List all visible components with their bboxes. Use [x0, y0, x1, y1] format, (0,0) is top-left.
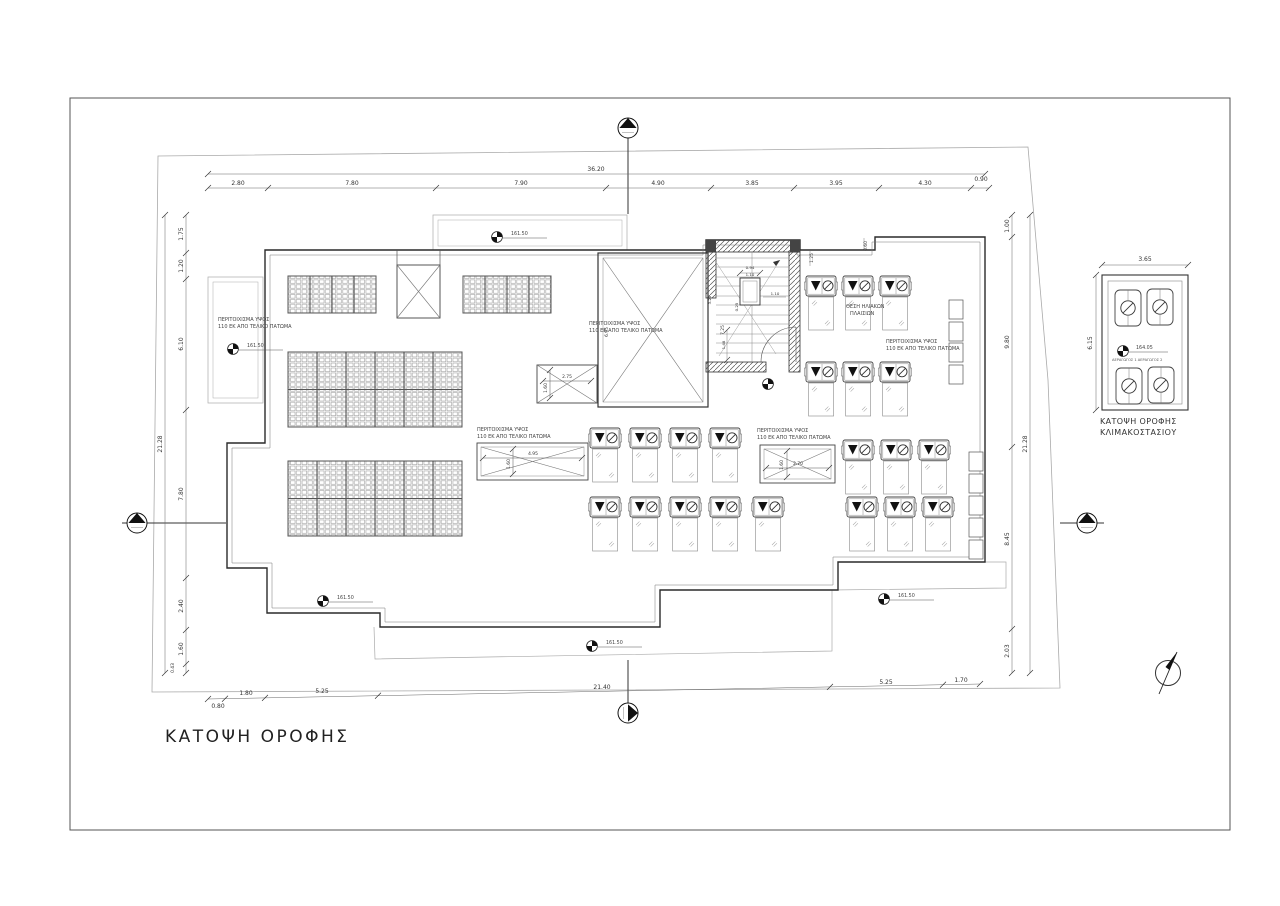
- hvac-unit: [883, 497, 916, 551]
- top-terrace-inner: [438, 220, 622, 246]
- vent-label: ΑΕΡΑΓΩΓΟΣ 1 ΑΕΡΑΓΩΓΟΣ 2: [1112, 358, 1162, 362]
- hvac-unit: [804, 276, 837, 330]
- dim: 5.25: [879, 679, 893, 686]
- bottom-terrace-line: [374, 590, 832, 659]
- hvac-unit: [878, 276, 911, 330]
- solar-panels-label: ΠΛΑΙΣΙΩΝ: [850, 311, 875, 317]
- dim: 3.85: [745, 180, 759, 187]
- dim: 6.15: [1087, 336, 1094, 350]
- hvac-unit: [921, 497, 954, 551]
- level-marker-icon: [763, 379, 774, 390]
- small-cross-box: [397, 265, 440, 318]
- hvac-unit: [588, 497, 621, 551]
- parapet-label: 110 ΕΚ ΑΠΟ ΤΕΛΙΚΟ ΠΑΤΩΜΑ: [218, 324, 292, 330]
- dim: 1.60: [543, 383, 549, 393]
- section-markers: [122, 118, 1104, 723]
- parapet-label: ΠΕΡΙΤΟΙΧΙΣΜΑ ΥΨΟΣ: [757, 428, 808, 434]
- hvac-unit: [668, 497, 701, 551]
- dim: 3.95: [829, 180, 843, 187]
- panel-array-lower: [288, 461, 462, 536]
- hvac-unit: [708, 497, 741, 551]
- level-value: 161.50: [247, 343, 264, 349]
- dimensions-top: 36.20 2.80 7.80 7.90 4.90 3.85 3.95 4.30…: [205, 166, 992, 191]
- dim: 3.65: [1138, 256, 1152, 263]
- parapet-label: 110 ΕΚ ΑΠΟ ΤΕΛΙΚΟ ΠΑΤΩΜΑ: [589, 328, 663, 334]
- dim: 1.80: [239, 690, 253, 697]
- roof-vent-unit: [1147, 289, 1173, 325]
- left-terrace: [208, 277, 263, 403]
- dim: 7.80: [178, 487, 185, 501]
- dim: 0.60: [863, 241, 869, 251]
- level-marker-icon: [1118, 346, 1129, 357]
- dim: 1.70: [954, 677, 968, 684]
- hvac-unit: [708, 428, 741, 482]
- section-marker-right: [1077, 513, 1097, 533]
- hvac-unit: [845, 497, 878, 551]
- hvac-unit: [804, 362, 837, 416]
- dim: 4.90: [651, 180, 665, 187]
- drawing-sheet: 161.50 161.50 161.50 161.50 161.50 36.20…: [0, 0, 1280, 906]
- solar-panel-arrays: [288, 276, 551, 536]
- panel-array-middle: [288, 352, 462, 427]
- roof-vent-unit: [1148, 367, 1174, 403]
- dim: 2.75: [562, 374, 572, 380]
- dim: 7.80: [345, 180, 359, 187]
- hvac-unit: [588, 428, 621, 482]
- dim: 0.90: [974, 176, 988, 183]
- dim: 1.75: [178, 227, 185, 241]
- dim: 1.48: [721, 340, 726, 349]
- dim: 21.40: [593, 684, 610, 691]
- section-marker-left: [127, 513, 147, 533]
- dim: 2.70: [793, 461, 803, 467]
- roof-plan-drawing: 161.50 161.50 161.50 161.50 161.50 36.20…: [0, 0, 1280, 906]
- dim: 1.25: [809, 253, 815, 263]
- dim: 1.10: [746, 272, 755, 277]
- detail-caption: ΚΛΙΜΑΚΟΣΤΑΣΙΟΥ: [1100, 428, 1177, 437]
- section-marker-top: [618, 118, 638, 138]
- hvac-unit: [879, 440, 912, 494]
- hvac-unit: [878, 362, 911, 416]
- parapet-label: ΠΕΡΙΤΟΙΧΙΣΜΑ ΥΨΟΣ: [589, 321, 640, 327]
- dimensions-bottom: 0.80 1.80 5.25 21.40 5.25 1.70: [205, 677, 983, 710]
- dim: 1.00: [1004, 219, 1011, 233]
- left-terrace-inner: [213, 282, 258, 398]
- level-marker-icon: [228, 344, 239, 355]
- parapet-label: 110 ΕΚ ΑΠΟ ΤΕΛΙΚΟ ΠΑΤΩΜΑ: [477, 434, 551, 440]
- dim-left-total: 21.28: [157, 435, 164, 452]
- dim: 8.45: [1004, 532, 1011, 546]
- wall-corner: [790, 240, 800, 252]
- drawing-title: ΚΑΤΟΨΗ ΟΡΟΦΗΣ: [165, 727, 350, 747]
- level-value: 161.50: [606, 640, 623, 646]
- dim: 2.40: [178, 599, 185, 613]
- panel-array-top-right: [463, 276, 551, 313]
- dim: 7.90: [514, 180, 528, 187]
- hvac-unit: [628, 497, 661, 551]
- level-value: 161.50: [898, 593, 915, 599]
- hvac-unit: [751, 497, 784, 551]
- wall-corner: [706, 240, 716, 252]
- panel-array-top-left: [288, 276, 376, 313]
- detail-caption: ΚΑΤΟΨΗ ΟΡΟΦΗΣ: [1100, 417, 1177, 426]
- dim: 2.03: [1004, 644, 1011, 658]
- parapet-label: ΠΕΡΙΤΟΙΧΙΣΜΑ ΥΨΟΣ: [477, 427, 528, 433]
- hvac-unit: [917, 440, 950, 494]
- dim: 1.60: [178, 642, 185, 656]
- dim: 3.25: [707, 295, 712, 304]
- stair-arrow: [773, 260, 780, 266]
- dim: 1.20: [178, 259, 185, 273]
- parapet-label: 110 ΕΚ ΑΠΟ ΤΕΛΙΚΟ ΠΑΤΩΜΑ: [886, 346, 960, 352]
- dim-top-total: 36.20: [587, 166, 604, 173]
- level-marker-icon: [879, 594, 890, 605]
- level-marker-icon: [492, 232, 503, 243]
- dim: 0.25: [734, 302, 739, 311]
- hvac-units: [588, 276, 954, 551]
- dim: 7.25: [720, 325, 726, 335]
- north-arrow-icon: [1156, 652, 1181, 694]
- dim: 0.80: [211, 703, 225, 710]
- dim: 6.10: [178, 337, 185, 351]
- level-value: 161.50: [337, 595, 354, 601]
- roof-vent-unit: [1115, 290, 1141, 326]
- level-value: 161.50: [511, 231, 528, 237]
- edge-box-strips: [949, 300, 983, 559]
- dim: 4.30: [918, 180, 932, 187]
- hvac-unit: [841, 276, 874, 330]
- dimensions-left: 21.28 1.75 1.20 6.10 7.80 2.40 1.60 0.43: [157, 212, 189, 676]
- dim: 0.43: [170, 663, 176, 673]
- level-marker-icon: [587, 641, 598, 652]
- roof-vent-unit: [1116, 368, 1142, 404]
- dimensions-right: 1.00 9.80 8.45 2.03 21.28: [1004, 212, 1033, 676]
- dim: 9.80: [1004, 335, 1011, 349]
- hvac-unit: [841, 362, 874, 416]
- dim-right-total: 21.28: [1022, 435, 1029, 452]
- right-terrace-line: [832, 562, 1006, 590]
- hvac-unit: [628, 428, 661, 482]
- parapet-label: ΠΕΡΙΤΟΙΧΙΣΜΑ ΥΨΟΣ: [886, 339, 937, 345]
- stairwell: [706, 238, 864, 372]
- dim: 4.95: [528, 451, 538, 457]
- dim: 1.60: [506, 459, 512, 469]
- hvac-unit: [668, 428, 701, 482]
- parapet-label: ΠΕΡΙΤΟΙΧΙΣΜΑ ΥΨΟΣ: [218, 317, 269, 323]
- dim: 2.80: [231, 180, 245, 187]
- section-marker-bottom: [618, 703, 638, 723]
- solar-panels-label: ΘΕΣΗ ΗΛΙΑΚΩΝ: [846, 304, 885, 310]
- hvac-unit: [841, 440, 874, 494]
- stair-roof-detail: 164.05 ΑΕΡΑΓΩΓΟΣ 1 ΑΕΡΑΓΩΓΟΣ 2 3.65 6.15…: [1087, 256, 1191, 437]
- level-value: 164.05: [1136, 345, 1153, 351]
- dim: 1.60: [779, 460, 785, 470]
- cross-box-495: [477, 443, 588, 480]
- dim: 5.25: [315, 688, 329, 695]
- level-marker-icon: [318, 596, 329, 607]
- parapet-label: 110 ΕΚ ΑΠΟ ΤΕΛΙΚΟ ΠΑΤΩΜΑ: [757, 435, 831, 441]
- dim: 1.10: [771, 291, 780, 296]
- dim: 0.94: [746, 265, 755, 270]
